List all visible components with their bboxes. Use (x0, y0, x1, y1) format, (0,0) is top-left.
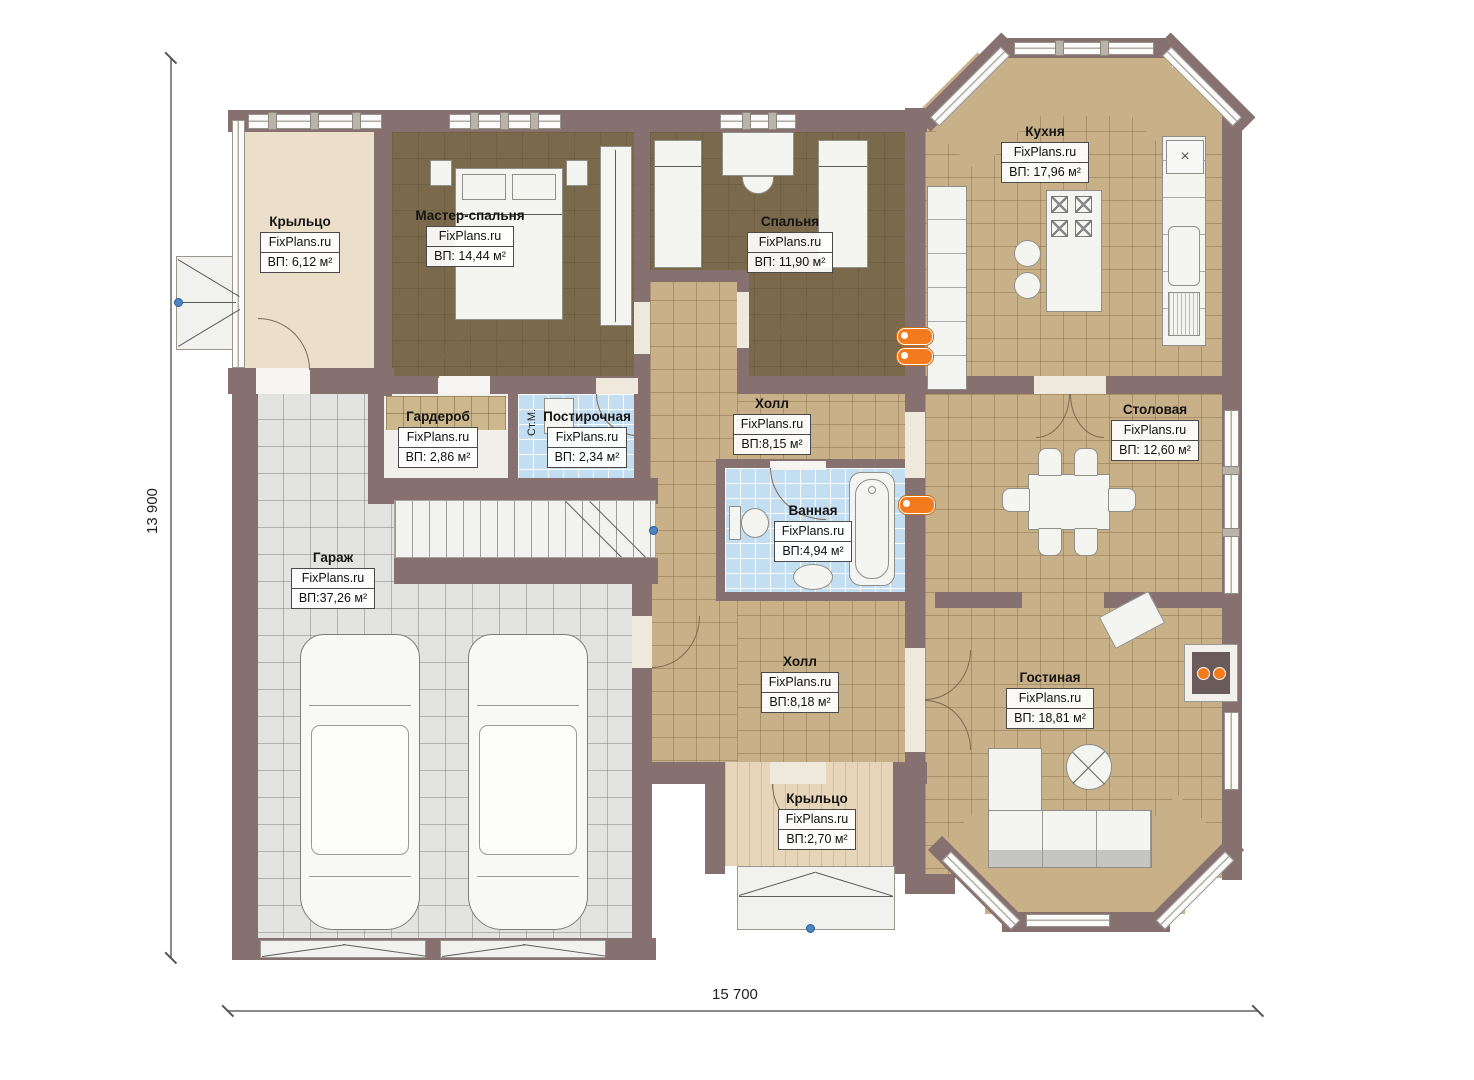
dining-chair (1074, 528, 1098, 556)
room-info-box: FixPlans.ru ВП:8,18 м² (761, 672, 840, 713)
wall (705, 762, 725, 874)
wall (893, 762, 913, 874)
entry-steps-bottom (737, 866, 895, 930)
window-post (310, 112, 319, 130)
dimension-height-label: 13 900 (144, 488, 161, 534)
kitchen-sink (1168, 226, 1200, 286)
pillow-line (655, 166, 701, 167)
bed-single (654, 140, 702, 268)
room-area: ВП: 2,86 м² (399, 447, 478, 467)
doorway-double (1034, 376, 1106, 394)
pillow-line (819, 166, 867, 167)
room-area: ВП: 11,90 м² (748, 252, 833, 272)
window-post (768, 112, 777, 130)
window-post (470, 112, 479, 130)
window-post (268, 112, 277, 130)
nightstand (430, 160, 452, 186)
nightstand (566, 160, 588, 186)
room-info-box: FixPlans.ru ВП:4,94 м² (774, 521, 853, 562)
entry-arrow-line (739, 896, 893, 897)
bathroom-sink (793, 564, 833, 590)
room-label-kitchen: Кухня FixPlans.ru ВП: 17,96 м² (985, 124, 1105, 183)
room-label-master-bedroom: Мастер-спальня FixPlans.ru ВП: 14,44 м² (398, 208, 542, 267)
wall (394, 558, 658, 584)
car-windshield-line (309, 705, 411, 706)
car (300, 634, 420, 930)
cooktop-burner-icon (1075, 220, 1092, 237)
room-name: Столовая (1093, 402, 1217, 418)
room-info-box: FixPlans.ru ВП: 6,12 м² (260, 232, 341, 273)
room-label-wardrobe: Гардероб FixPlans.ru ВП: 2,86 м² (380, 409, 496, 468)
wall (232, 392, 258, 960)
room-name: Холл (740, 654, 860, 670)
window (1224, 410, 1239, 594)
watermark: FixPlans.ru (775, 522, 852, 541)
doorway (634, 302, 650, 354)
window-post (1222, 466, 1240, 475)
room-name: Гардероб (380, 409, 496, 425)
room-name: Гараж (272, 550, 394, 566)
opening (905, 412, 925, 478)
room-label-garage: Гараж FixPlans.ru ВП:37,26 м² (272, 550, 394, 609)
dining-chair (1108, 488, 1136, 512)
doorway (438, 376, 490, 394)
dimension-line-vertical (170, 58, 172, 958)
wall (508, 394, 518, 478)
level-marker (649, 526, 658, 535)
room-name: Постирочная (528, 409, 646, 425)
dining-chair (1038, 528, 1062, 556)
cooktop-burner-icon (1075, 196, 1092, 213)
watermark: FixPlans.ru (399, 428, 478, 447)
watermark: FixPlans.ru (779, 810, 856, 829)
room-area: ВП: 2,34 м² (548, 447, 627, 467)
room-info-box: FixPlans.ru ВП:37,26 м² (291, 568, 375, 609)
window-post (352, 112, 361, 130)
wall (374, 110, 392, 396)
wall (228, 368, 394, 394)
room-area: ВП:2,70 м² (779, 829, 856, 849)
room-label-dining: Столовая FixPlans.ru ВП: 12,60 м² (1093, 402, 1217, 461)
pillow (512, 174, 556, 200)
window-bay (1026, 914, 1110, 927)
room-label-hall-lower: Холл FixPlans.ru ВП:8,18 м² (740, 654, 860, 713)
wall (905, 874, 955, 894)
room-name: Холл (720, 396, 824, 412)
dimension-line-horizontal (228, 1010, 1258, 1012)
car-rear-line (477, 876, 579, 877)
bar-stool (1014, 240, 1041, 267)
watermark: FixPlans.ru (734, 415, 811, 434)
room-name: Гостиная (983, 670, 1117, 686)
cooktop-burner-icon (1051, 196, 1068, 213)
room-label-porch-left: Крыльцо FixPlans.ru ВП: 6,12 м² (238, 214, 362, 273)
room-area: ВП: 14,44 м² (427, 246, 513, 266)
room-info-box: FixPlans.ru ВП:8,15 м² (733, 414, 812, 455)
dimension-width-label: 15 700 (712, 986, 758, 1003)
level-marker (174, 298, 183, 307)
room-area: ВП: 17,96 м² (1002, 162, 1088, 182)
desk (722, 132, 794, 176)
window-post (1222, 528, 1240, 537)
radiator-icon (897, 348, 933, 365)
doorway (770, 762, 826, 784)
level-marker (806, 924, 815, 933)
watermark: FixPlans.ru (1002, 143, 1088, 162)
room-area: ВП: 12,60 м² (1112, 440, 1198, 460)
fireplace-log-icon (1213, 667, 1226, 680)
room-name: Крыльцо (756, 791, 878, 807)
window-post (1100, 40, 1109, 56)
window-post (1055, 40, 1064, 56)
room-area: ВП:8,18 м² (762, 692, 839, 712)
pillow (462, 174, 506, 200)
room-label-laundry: Постирочная FixPlans.ru ВП: 2,34 м² (528, 409, 646, 468)
room-info-box: FixPlans.ru ВП: 18,81 м² (1006, 688, 1094, 729)
doorway-double (905, 648, 925, 752)
entry-arrow-line (178, 302, 236, 303)
dining-chair (1002, 488, 1030, 512)
bathtub-drain (868, 486, 876, 494)
window (720, 114, 796, 129)
room-area: ВП:8,15 м² (734, 434, 811, 454)
car-rear-line (309, 876, 411, 877)
room-label-bedroom: Спальня FixPlans.ru ВП: 11,90 м² (728, 214, 852, 273)
radiator-icon (899, 496, 935, 514)
doorway (256, 368, 310, 394)
kitchen-counter (927, 186, 967, 390)
kitchen-vent-icon: × (1166, 140, 1204, 174)
fireplace (1184, 644, 1238, 702)
room-name: Спальня (728, 214, 852, 230)
wall (935, 592, 1022, 608)
window-bay (1014, 42, 1154, 55)
wall (737, 376, 927, 394)
window (1224, 712, 1239, 790)
room-label-bathroom: Ванная FixPlans.ru ВП:4,94 м² (761, 503, 865, 562)
window-post (500, 112, 509, 130)
watermark: FixPlans.ru (292, 569, 374, 588)
room-name: Крыльцо (238, 214, 362, 230)
car (468, 634, 588, 930)
dining-table (1028, 474, 1110, 530)
room-info-box: FixPlans.ru ВП: 14,44 м² (426, 226, 514, 267)
doorway (596, 378, 638, 394)
room-area: ВП: 18,81 м² (1007, 708, 1093, 728)
room-area: ВП:37,26 м² (292, 588, 374, 608)
floor-plan: × Ст.М. (0, 0, 1474, 1080)
window-post (530, 112, 539, 130)
radiator-icon (897, 328, 933, 345)
watermark: FixPlans.ru (427, 227, 513, 246)
room-name: Ванная (761, 503, 865, 519)
sofa (988, 810, 1152, 868)
watermark: FixPlans.ru (762, 673, 839, 692)
room-info-box: FixPlans.ru ВП: 17,96 м² (1001, 142, 1089, 183)
room-info-box: FixPlans.ru ВП: 11,90 м² (747, 232, 834, 273)
watermark: FixPlans.ru (1007, 689, 1093, 708)
room-info-box: FixPlans.ru ВП: 12,60 м² (1111, 420, 1199, 461)
cooktop-burner-icon (1051, 220, 1068, 237)
room-area: ВП: 6,12 м² (261, 252, 340, 272)
garage-door (440, 940, 606, 958)
room-label-hall-upper: Холл FixPlans.ru ВП:8,15 м² (720, 396, 824, 455)
room-info-box: FixPlans.ru ВП: 2,86 м² (398, 427, 479, 468)
room-label-living: Гостиная FixPlans.ru ВП: 18,81 м² (983, 670, 1117, 729)
dishwasher (1168, 292, 1200, 336)
fireplace-log-icon (1197, 667, 1210, 680)
bar-stool (1014, 272, 1041, 299)
car-roof (311, 725, 409, 855)
room-label-porch-bottom: Крыльцо FixPlans.ru ВП:2,70 м² (756, 791, 878, 850)
toilet-tank (729, 506, 741, 540)
doorway (632, 616, 652, 668)
doorway (737, 292, 749, 348)
wardrobe-line (615, 150, 616, 322)
watermark: FixPlans.ru (261, 233, 340, 252)
room-info-box: FixPlans.ru ВП:2,70 м² (778, 809, 857, 850)
room-name: Мастер-спальня (398, 208, 542, 224)
room-name: Кухня (985, 124, 1105, 140)
car-roof (479, 725, 577, 855)
garage-door (260, 940, 426, 958)
wardrobe-unit (600, 146, 632, 326)
car-windshield-line (477, 705, 579, 706)
room-area: ВП:4,94 м² (775, 541, 852, 561)
dining-chair (1038, 448, 1062, 476)
room-info-box: FixPlans.ru ВП: 2,34 м² (547, 427, 628, 468)
wall (1222, 108, 1242, 396)
watermark: FixPlans.ru (548, 428, 627, 447)
watermark: FixPlans.ru (1112, 421, 1198, 440)
window-post (742, 112, 751, 130)
watermark: FixPlans.ru (748, 233, 833, 252)
